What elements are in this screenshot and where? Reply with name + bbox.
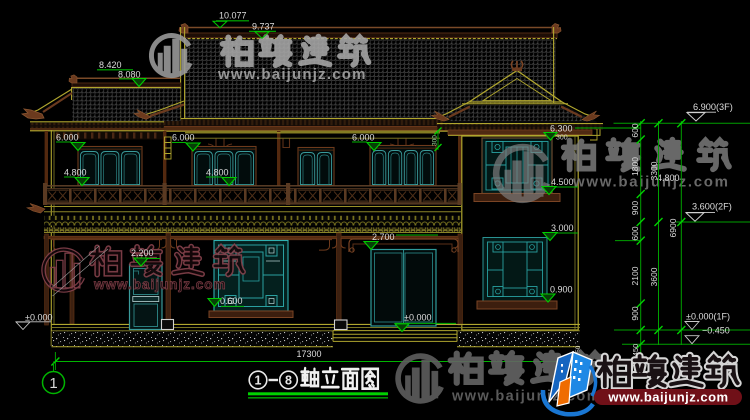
svg-text:8: 8 (285, 374, 292, 388)
svg-text:3.000: 3.000 (551, 223, 574, 233)
svg-text:0.900: 0.900 (550, 285, 573, 295)
svg-text:1800: 1800 (630, 157, 640, 176)
svg-text:9.737: 9.737 (252, 22, 275, 32)
svg-text:600: 600 (630, 123, 640, 137)
svg-text:6.000: 6.000 (172, 133, 195, 143)
svg-text:17300: 17300 (296, 349, 321, 359)
svg-text:600: 600 (630, 226, 640, 240)
svg-text:0.600: 0.600 (220, 296, 243, 306)
svg-text:−0.450: −0.450 (702, 326, 730, 336)
svg-text:8.420: 8.420 (99, 60, 122, 70)
svg-text:2.200: 2.200 (131, 248, 154, 258)
svg-text:±0.000: ±0.000 (25, 313, 52, 323)
svg-text:10.077: 10.077 (219, 11, 247, 21)
svg-text:6.900(3F): 6.900(3F) (693, 102, 733, 112)
svg-text:900: 900 (630, 201, 640, 215)
svg-text:4.800: 4.800 (206, 168, 229, 178)
svg-text:www.baijunjz.com: www.baijunjz.com (607, 390, 728, 405)
svg-text:300: 300 (556, 135, 568, 142)
svg-text:4.800: 4.800 (64, 168, 87, 178)
svg-text:1: 1 (49, 375, 57, 392)
svg-text:2100: 2100 (630, 266, 640, 285)
svg-text:1: 1 (255, 374, 262, 388)
svg-text:±0.000: ±0.000 (404, 313, 431, 323)
svg-text:www.baijunjz.com: www.baijunjz.com (217, 66, 367, 83)
svg-text:4.800: 4.800 (657, 173, 680, 183)
svg-text:3300: 3300 (649, 161, 659, 180)
svg-text:2.700: 2.700 (372, 232, 395, 242)
svg-text:300: 300 (432, 135, 439, 146)
svg-text:6.000: 6.000 (56, 133, 79, 143)
svg-text:6.000: 6.000 (352, 133, 375, 143)
svg-text:4.500: 4.500 (551, 177, 574, 187)
svg-text:900: 900 (630, 306, 640, 320)
svg-text:3.600(2F): 3.600(2F) (692, 202, 732, 212)
svg-text:±0.000(1F): ±0.000(1F) (686, 312, 730, 322)
svg-text:www.baijunjz.com: www.baijunjz.com (93, 277, 227, 292)
svg-text:3600: 3600 (649, 267, 659, 286)
svg-text:6900: 6900 (668, 218, 678, 237)
